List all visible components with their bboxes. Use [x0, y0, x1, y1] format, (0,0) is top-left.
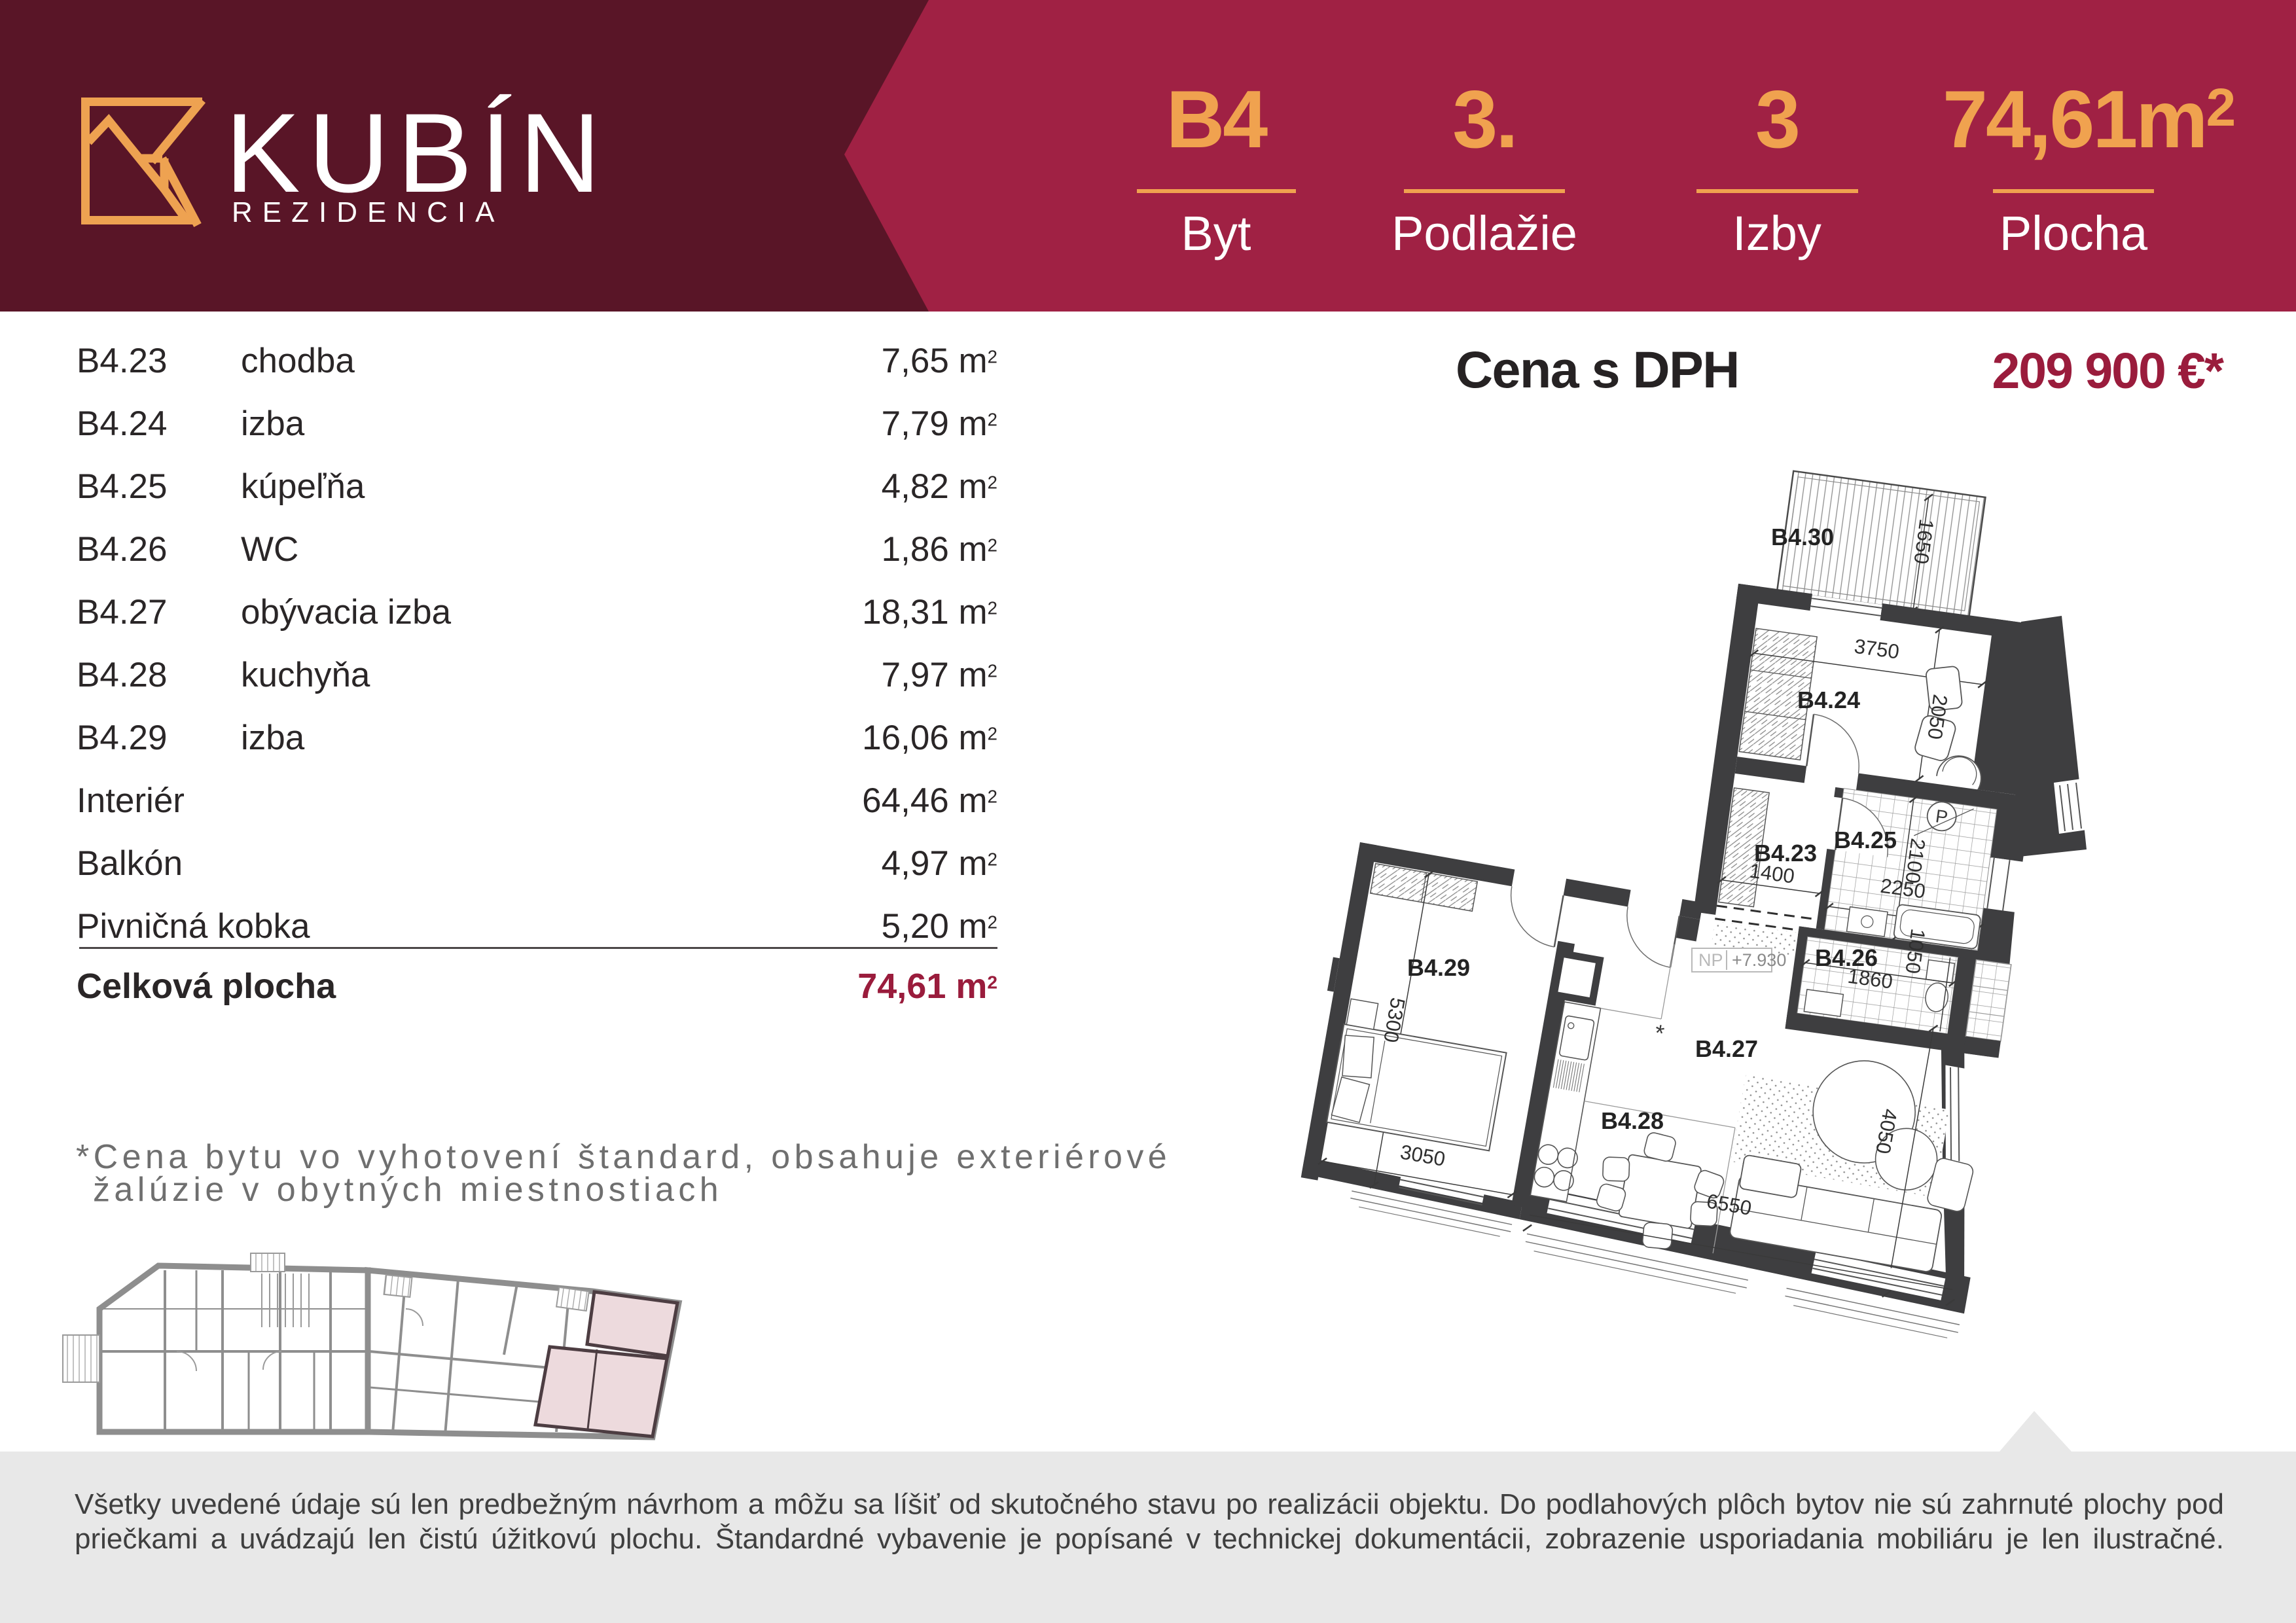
svg-text:B4.29: B4.29	[1407, 954, 1470, 981]
svg-text:*: *	[1653, 1019, 1666, 1047]
svg-text:B4.25: B4.25	[1834, 827, 1897, 853]
svg-text:B4.27: B4.27	[1695, 1035, 1758, 1062]
svg-text:3050: 3050	[1399, 1140, 1447, 1170]
svg-text:+7.930: +7.930	[1732, 950, 1786, 970]
svg-text:B4.24: B4.24	[1797, 687, 1860, 713]
svg-text:NP: NP	[1698, 950, 1723, 970]
svg-text:B4.30: B4.30	[1771, 524, 1834, 550]
svg-text:B4.28: B4.28	[1601, 1107, 1664, 1134]
svg-text:3750: 3750	[1853, 635, 1901, 664]
